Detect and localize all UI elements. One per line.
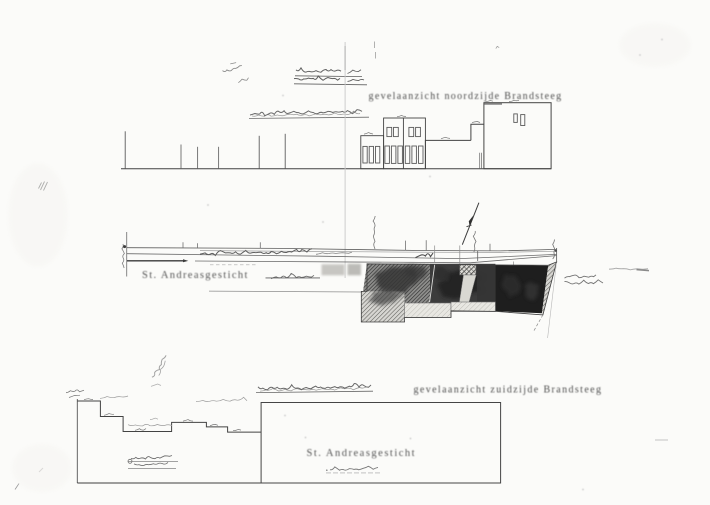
svg-text:St. Andreasgesticht: St. Andreasgesticht (307, 448, 417, 459)
svg-text:gevelaanzicht zuidzijde Brands: gevelaanzicht zuidzijde Brandsteeg (414, 385, 603, 396)
svg-text:St. Andreasgesticht: St. Andreasgesticht (142, 270, 249, 281)
svg-text:gevelaanzicht noordzijde Brand: gevelaanzicht noordzijde Brandsteeg (369, 91, 563, 102)
